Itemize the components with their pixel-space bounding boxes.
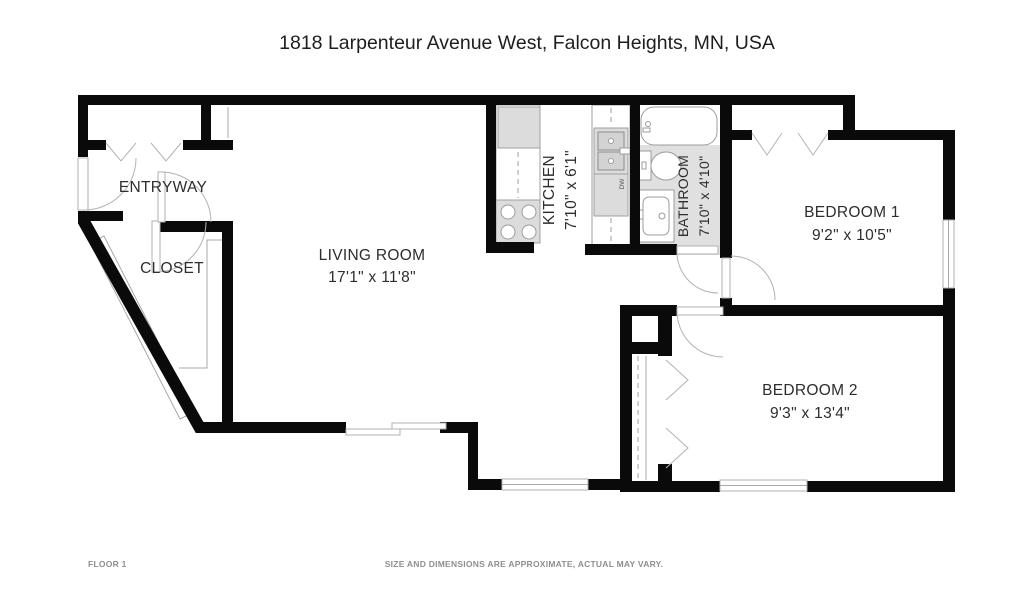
room-label-closet: CLOSET xyxy=(140,260,204,277)
sink-drain-icon xyxy=(609,139,614,144)
refrigerator-icon xyxy=(498,107,540,148)
room-label-kitchen-group: KITCHEN 7'10" x 6'1" xyxy=(541,150,580,230)
room-label-entryway: ENTRYWAY xyxy=(119,179,207,196)
window xyxy=(720,480,807,491)
room-label-bedroom-1: BEDROOM 1 xyxy=(804,204,900,221)
sink-drain-icon xyxy=(659,213,665,219)
bathtub-faucet-icon xyxy=(646,122,651,127)
bifold-chevron-icon xyxy=(666,360,688,400)
room-label-bathroom: BATHROOM xyxy=(675,155,691,237)
bedroom1-door xyxy=(722,256,775,300)
room-dims-bedroom-2: 9'3" x 13'4" xyxy=(770,405,850,422)
bifold-chevron-icon xyxy=(666,428,688,468)
floor-label: FLOOR 1 xyxy=(88,559,127,569)
room-dims-bedroom-1: 9'2" x 10'5" xyxy=(812,227,892,244)
bifold-chevron-icon xyxy=(106,143,136,161)
diagonal-wall xyxy=(83,220,201,430)
bathroom-door xyxy=(677,246,718,293)
disclaimer-text: SIZE AND DIMENSIONS ARE APPROXIMATE, ACT… xyxy=(385,559,664,569)
room-dims-bathroom: 7'10" x 4'10" xyxy=(696,156,712,237)
bifold-chevron-icon xyxy=(798,133,828,155)
page-title: 1818 Larpenteur Avenue West, Falcon Heig… xyxy=(279,32,775,54)
floor-plan-page: DW xyxy=(0,0,1030,607)
windows xyxy=(346,220,954,491)
sink-drain-icon xyxy=(609,159,614,164)
window xyxy=(943,220,954,288)
burner-icon xyxy=(522,205,536,219)
bathtub-icon xyxy=(641,107,717,145)
bedroom2-door xyxy=(677,307,723,357)
room-label-kitchen: KITCHEN xyxy=(541,155,558,225)
window xyxy=(502,479,588,490)
burner-icon xyxy=(522,225,536,239)
burner-icon xyxy=(501,225,515,239)
bedroom2-closet-internals xyxy=(638,356,646,480)
floor-plan-svg: DW xyxy=(0,0,1030,607)
toilet-flush-icon xyxy=(642,162,646,169)
bifold-chevron-icon xyxy=(151,143,181,161)
sink-faucet-icon xyxy=(620,148,630,154)
room-dims-kitchen: 7'10" x 6'1" xyxy=(563,150,580,230)
bifold-chevron-icon xyxy=(752,133,782,155)
burner-icon xyxy=(501,205,515,219)
dishwasher-label: DW xyxy=(619,178,626,190)
bathtub-handle-icon xyxy=(643,128,650,132)
sliding-door xyxy=(346,423,446,435)
room-label-living-room: LIVING ROOM xyxy=(319,247,426,264)
room-label-bedroom-2: BEDROOM 2 xyxy=(762,382,858,399)
room-dims-living-room: 17'1" x 11'8" xyxy=(328,269,416,286)
